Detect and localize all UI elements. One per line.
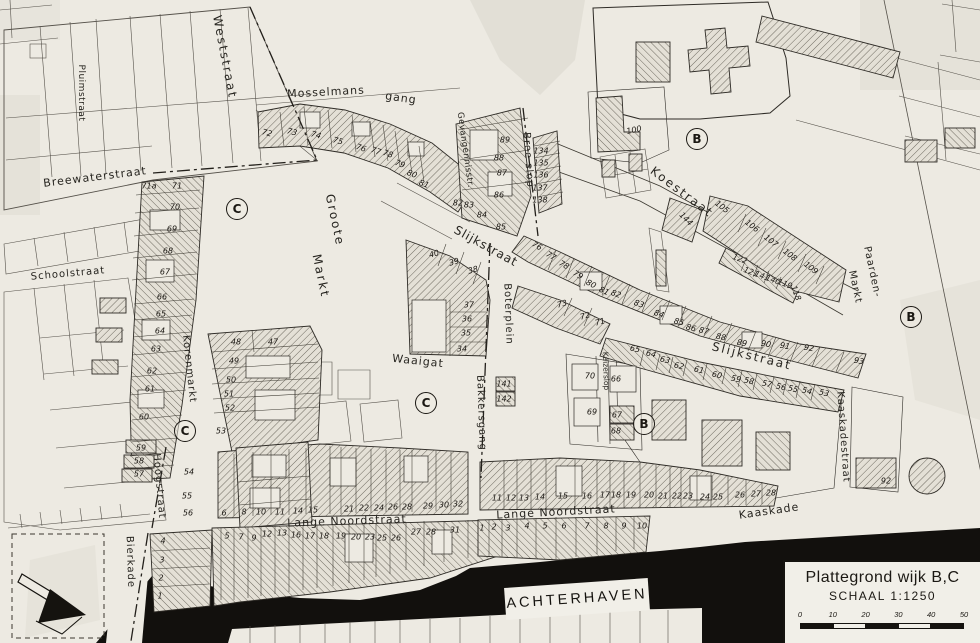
house-number: 22 [359,504,369,513]
house-number: 58 [134,457,144,466]
house-number: 91 [779,341,791,352]
house-number: 57 [761,379,773,390]
house-number: 138 [532,196,547,205]
house-number: 73 [556,298,568,309]
street-label: gang [384,89,417,106]
house-number: 66 [611,375,621,384]
house-number: 105 [713,199,731,216]
house-number: 18 [319,532,329,541]
street-label: Bierkade [124,536,137,589]
house-number: 19 [336,532,346,541]
house-number: 10 [256,508,266,517]
house-number: 92 [803,343,815,354]
house-number: 22 [672,492,682,501]
house-number: 65 [629,344,641,355]
house-number: 35 [461,329,471,338]
house-number: 88 [494,154,504,163]
scale-bar: 01020304050 [800,610,964,634]
house-number: 79 [571,269,584,282]
house-number: 100 [626,124,643,136]
house-number: 17 [305,532,315,541]
house-number: 80 [584,278,597,291]
house-number: 51 [224,390,234,399]
street-label: Gevangennisstr. [455,112,476,189]
house-number: 27 [751,490,761,499]
house-number: 63 [659,355,671,366]
house-number: 86 [494,191,504,200]
scale-tick-label: 30 [894,610,902,619]
house-number: 9 [621,522,626,531]
house-number: 23 [683,492,693,501]
house-number: 65 [156,310,166,319]
house-number: 1 [157,592,162,601]
house-number: 59 [136,444,146,453]
map-scale-text: SCHAAL 1:1250 [785,589,980,603]
house-number: 31 [450,526,460,535]
scale-bar-segment [800,623,833,629]
house-number: 53 [216,427,226,436]
house-number: 137 [532,184,547,193]
house-number: 64 [645,349,657,360]
street-label: Hoogstraat [151,453,168,519]
house-number: 1 [479,524,484,533]
house-number: 74 [310,129,322,140]
district-marker-c: C [415,392,437,414]
house-number: 17 [600,491,610,500]
house-number: 84 [477,211,487,220]
house-number: 34 [457,345,467,354]
house-number: 30 [439,501,449,510]
street-label: Schoolstraat [30,265,105,282]
house-number: 11 [492,494,502,503]
house-number: 93 [853,356,865,367]
house-number: 56 [183,509,193,518]
house-number: 16 [582,492,592,501]
house-number: 14 [293,507,303,516]
house-number: 24 [700,493,710,502]
street-label: Markt [846,269,864,304]
house-number: 79 [394,158,407,170]
house-number: 144 [677,210,694,227]
street-label: Kaaskadestraat [834,391,851,483]
house-number: 118 [789,284,803,301]
house-number: 89 [736,338,748,349]
house-number: 26 [391,534,401,543]
house-number: 82 [610,288,623,300]
scale-tick-label: 20 [861,610,869,619]
street-label: Paarden- [861,245,883,298]
house-number: 108 [781,247,799,264]
house-number: 20 [644,491,654,500]
street-label: Breewaterstraat [43,164,148,190]
house-number: 82 [453,199,463,208]
district-marker-c: C [174,420,196,442]
house-number: 49 [229,357,239,366]
house-number: 70 [585,372,595,381]
house-number: 55 [182,492,192,501]
house-number: 71 [172,182,182,191]
house-number: 136 [533,171,548,180]
house-number: 15 [558,492,568,501]
house-number: 28 [426,528,436,537]
house-number: 48 [231,338,241,347]
house-number: 69 [167,225,177,234]
house-number: 59 [730,374,742,385]
house-number: 90 [760,339,772,350]
house-number: 25 [377,534,387,543]
house-number: 2 [491,523,496,532]
house-number: 122 [731,252,748,266]
house-number: 5 [224,532,229,541]
house-number: 47 [268,338,278,347]
street-label: Weststraat [210,14,240,100]
house-number: 21 [658,492,668,501]
house-number: 106 [743,218,761,235]
street-label: Boterplein [501,283,514,345]
house-number: 3 [159,556,164,565]
house-number: 135 [533,159,548,168]
house-number: 61 [145,385,155,394]
house-number: 83 [633,298,645,310]
street-label: Lange Noordstraat [287,512,407,529]
house-number: 7 [584,522,589,531]
house-number: 66 [157,293,167,302]
house-number: 72 [261,127,273,138]
house-number: 62 [147,367,157,376]
house-number: 60 [711,370,723,381]
district-marker-b: B [686,128,708,150]
scale-bar-segment [866,623,899,629]
street-label: Lange Noordstraat [496,502,616,521]
house-number: 78 [382,148,394,160]
house-number: 71a [141,182,156,191]
house-number: 62 [673,361,685,372]
house-number: 72 [579,310,591,321]
street-label: Groote [323,193,348,248]
house-number: 68 [163,247,173,256]
scale-tick-label: 50 [960,610,968,619]
house-number: 15 [308,506,318,515]
house-number: 13 [277,529,287,538]
house-number: 86 [685,322,697,333]
house-number: 76 [355,142,367,154]
map-title: Plattegrond wijk B,C [785,569,980,587]
house-number: 38 [467,264,479,275]
street-label: Pluimstraat [76,65,86,122]
house-number: 37 [464,301,474,310]
house-number: 107 [762,233,780,250]
house-number: 14 [535,493,545,502]
house-number: 9 [251,534,256,543]
street-label: Kaaskade [738,500,800,521]
house-number: 39 [448,256,460,267]
house-number: 64 [155,327,165,336]
house-number: 5 [542,522,547,531]
house-number: 40 [428,248,440,259]
house-number: 142 [496,395,511,404]
scale-tick-label: 40 [927,610,935,619]
house-number: 81 [597,285,610,297]
house-number: 60 [139,413,149,422]
house-number: 57 [134,470,144,479]
house-number: 87 [497,169,507,178]
house-number: 78 [557,259,570,272]
house-number: 6 [221,509,226,518]
house-number: 58 [743,376,755,387]
water-label: ACHTERHAVEN [506,586,648,612]
house-number: 67 [160,268,170,277]
street-label: Kaizerslop [601,352,611,391]
house-number: 28 [766,489,776,498]
house-number: 92 [881,477,891,486]
house-number: 26 [735,491,745,500]
label-overlay: WeststraatPluimstraatBreewaterstraatScho… [0,0,980,643]
map-canvas: WeststraatPluimstraatBreewaterstraatScho… [0,0,980,643]
house-number: 21 [344,505,354,514]
house-number: 56 [775,382,787,393]
house-number: 54 [184,468,194,477]
house-number: 25 [713,493,723,502]
house-number: 85 [496,223,506,232]
district-marker-c: C [226,198,248,220]
house-number: 28 [402,503,412,512]
house-number: 141 [496,380,511,389]
street-label: Korenmarkt [180,334,198,403]
house-number: 36 [462,315,472,324]
house-number: 80 [406,168,419,180]
scale-tick-label: 0 [798,610,802,619]
district-marker-b: B [633,413,655,435]
house-number: 89 [500,136,510,145]
house-number: 13 [519,494,529,503]
house-number: 19 [626,491,636,500]
house-number: 75 [332,135,344,146]
street-label: Waaigat [392,352,445,370]
house-number: 76 [530,240,543,253]
scale-bar-segment [898,623,931,629]
house-number: 77 [544,250,557,263]
house-number: 109 [802,260,820,277]
house-number: 63 [151,345,161,354]
house-number: 8 [603,522,608,531]
house-number: 16 [291,531,301,540]
house-number: 12 [262,530,272,539]
house-number: 84 [653,308,665,320]
house-number: 3 [505,524,510,533]
district-marker-b: B [900,306,922,328]
house-number: 50 [226,376,236,385]
house-number: 4 [160,537,165,546]
house-number: 24 [374,504,384,513]
street-label: Markt [310,253,333,299]
house-number: 67 [612,411,622,420]
scale-tick-label: 10 [829,610,837,619]
house-number: 54 [801,386,813,397]
house-number: 11 [275,508,285,517]
house-number: 134 [533,147,548,156]
house-number: 7 [238,533,243,542]
house-number: 61 [693,365,705,376]
house-number: 26 [388,503,398,512]
scale-bar-segment [931,623,964,629]
street-label: Bakkersgang [474,375,488,451]
house-number: 71 [594,316,606,327]
house-number: 69 [587,408,597,417]
house-number: 70 [170,203,180,212]
street-label: Mosselmans [287,83,365,100]
house-number: 83 [464,201,474,210]
house-number: 27 [411,528,421,537]
house-number: 85 [673,316,685,327]
street-label: Slijkstraat [452,223,521,270]
house-number: 68 [611,427,621,436]
house-number: 73 [286,126,298,137]
house-number: 8 [241,508,246,517]
house-number: 55 [787,384,799,395]
house-number: 12 [506,494,516,503]
house-number: 29 [423,502,433,511]
house-number: 81 [418,178,431,190]
scale-bar-segment [833,623,866,629]
house-number: 20 [351,533,361,542]
house-number: 88 [715,332,727,343]
house-number: 18 [611,491,621,500]
house-number: 10 [637,522,647,531]
title-block: Plattegrond wijk B,C SCHAAL 1:1250 01020… [783,560,980,643]
house-number: 6 [561,522,566,531]
house-number: 32 [453,500,463,509]
house-number: 87 [698,325,710,336]
house-number: 77 [370,145,382,157]
house-number: 2 [158,574,163,583]
house-number: 53 [818,388,830,399]
house-number: 52 [225,404,235,413]
house-number: 23 [365,533,375,542]
house-number: 4 [524,522,529,531]
